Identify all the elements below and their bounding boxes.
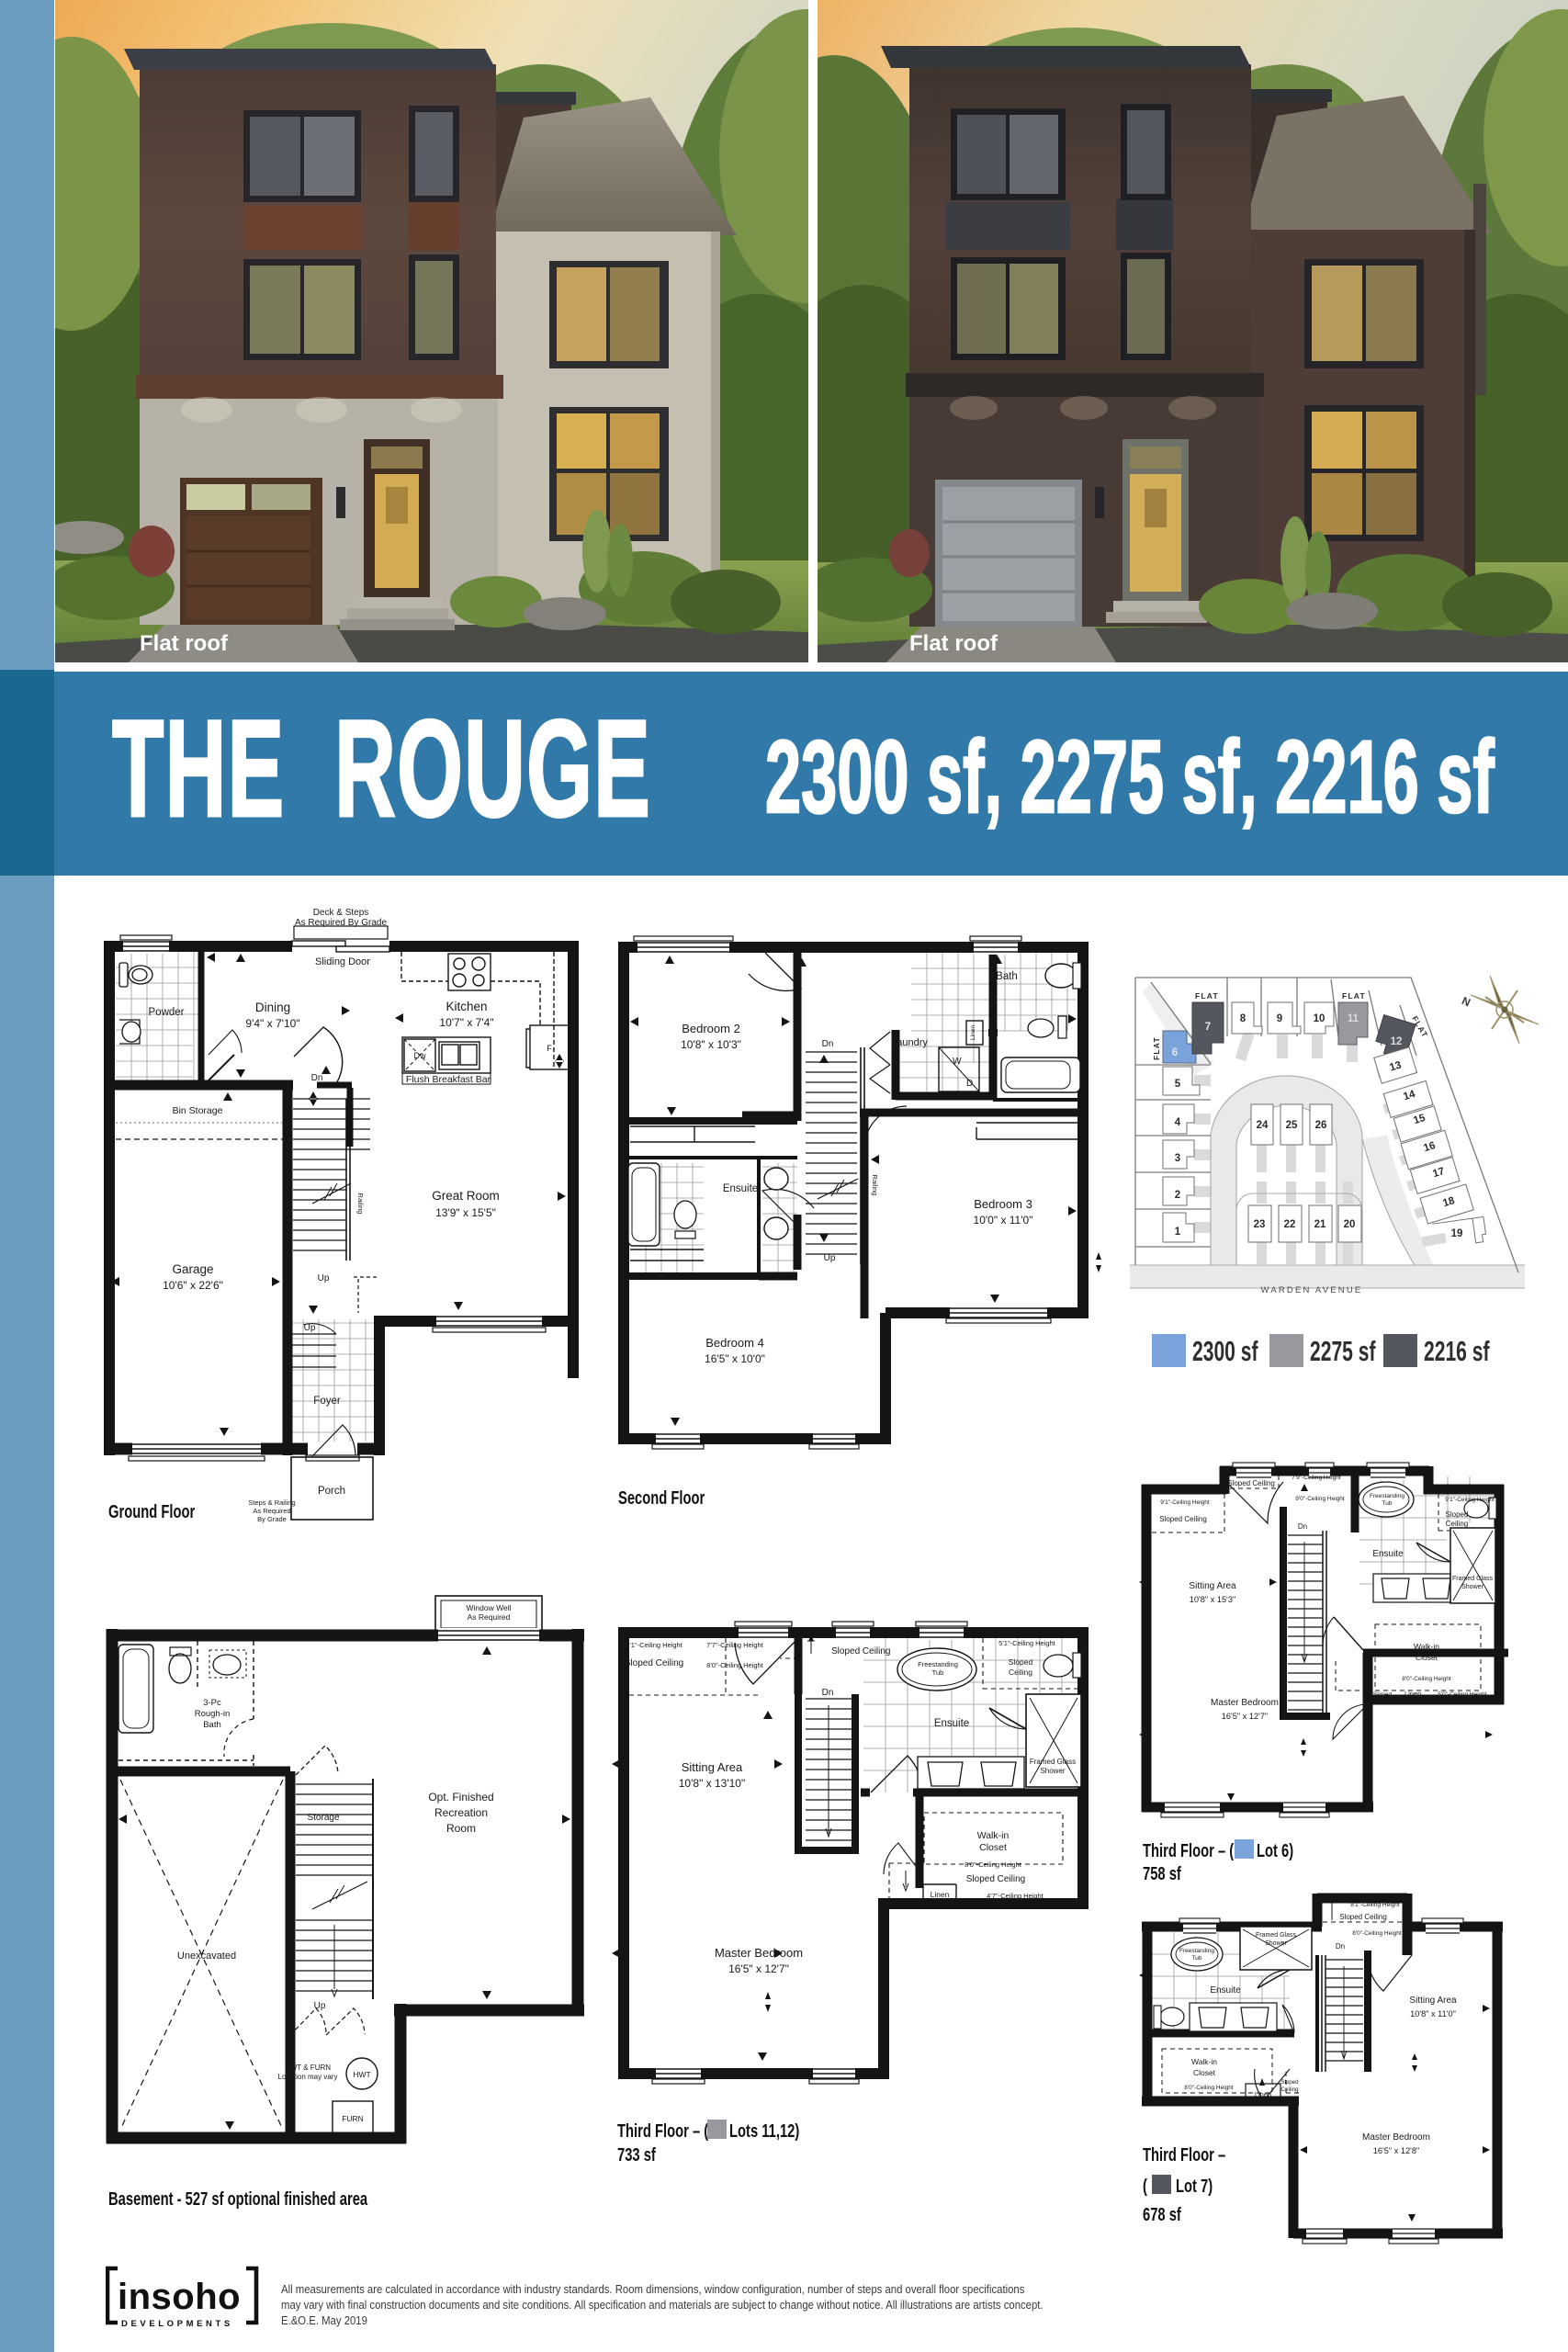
svg-text:21: 21	[1314, 1219, 1326, 1230]
svg-text:Lot 7): Lot 7)	[1176, 2176, 1213, 2197]
svg-text:Steps & Railing: Steps & Railing	[248, 1498, 295, 1507]
svg-text:2300 sf: 2300 sf	[1192, 1335, 1258, 1367]
svg-text:Kitchen: Kitchen	[446, 1000, 487, 1013]
svg-text:733 sf: 733 sf	[617, 2144, 656, 2165]
svg-text:Shower: Shower	[1461, 1584, 1483, 1590]
svg-text:Walk-in: Walk-in	[977, 1830, 1010, 1841]
svg-text:10'6" x 22'6": 10'6" x 22'6"	[163, 1279, 223, 1292]
svg-text:Sloped: Sloped	[1280, 2079, 1299, 2086]
svg-text:Sloped Ceiling: Sloped Ceiling	[1227, 1479, 1275, 1487]
svg-text:8'1"-Ceiling Height: 8'1"-Ceiling Height	[1350, 1902, 1400, 1908]
svg-text:Flat roof: Flat roof	[909, 631, 998, 656]
svg-text:Up: Up	[318, 1273, 330, 1283]
svg-text:678 sf: 678 sf	[1143, 2204, 1181, 2225]
svg-text:N: N	[1460, 994, 1472, 1009]
svg-text:Ceiling: Ceiling	[1446, 1520, 1468, 1528]
svg-text:Porch: Porch	[318, 1486, 345, 1497]
svg-text:WARDEN AVENUE: WARDEN AVENUE	[1261, 1285, 1363, 1295]
svg-text:Master Bedroom: Master Bedroom	[1211, 1698, 1279, 1708]
svg-text:W: W	[953, 1057, 962, 1067]
svg-text:Window Well: Window Well	[467, 1603, 512, 1612]
svg-text:758 sf: 758 sf	[1143, 1863, 1181, 1883]
svg-text:10'8" x 10'3": 10'8" x 10'3"	[681, 1038, 741, 1051]
svg-text:insoho: insoho	[118, 2277, 241, 2317]
svg-text:Master Bedroom: Master Bedroom	[715, 1946, 803, 1960]
svg-text:8: 8	[1240, 1013, 1247, 1024]
svg-text:Sloped Ceiling: Sloped Ceiling	[831, 1646, 891, 1657]
svg-text:Ground Floor: Ground Floor	[108, 1501, 195, 1522]
svg-text:Bin Storage: Bin Storage	[173, 1105, 223, 1116]
svg-text:Laundry: Laundry	[891, 1037, 928, 1048]
svg-text:Deck & Steps: Deck & Steps	[313, 908, 369, 918]
svg-text:Tub: Tub	[1192, 1955, 1202, 1962]
svg-text:Railing: Railing	[356, 1193, 365, 1215]
svg-text:Rough-in: Rough-in	[195, 1709, 231, 1719]
svg-text:9'0"-Ceiling Height: 9'0"-Ceiling Height	[1295, 1496, 1345, 1502]
svg-text:Sloped Ceiling: Sloped Ceiling	[625, 1658, 684, 1668]
svg-text:5: 5	[1175, 1079, 1181, 1090]
svg-text:9'4" x 7'10": 9'4" x 7'10"	[245, 1017, 299, 1030]
svg-text:7'7"-Ceiling Height: 7'7"-Ceiling Height	[706, 1641, 764, 1649]
svg-text:Dining: Dining	[255, 1001, 290, 1014]
svg-text:Up: Up	[304, 1323, 316, 1333]
svg-text:Sitting Area: Sitting Area	[1189, 1581, 1236, 1591]
svg-text:6: 6	[1172, 1047, 1178, 1058]
svg-text:Linen: Linen	[1255, 2090, 1271, 2098]
svg-text:10'8" x 13'10": 10'8" x 13'10"	[679, 1777, 746, 1790]
svg-text:5'0"-Ceiling Height: 5'0"-Ceiling Height	[1438, 1691, 1487, 1698]
svg-text:Bedroom 3: Bedroom 3	[974, 1197, 1032, 1211]
svg-text:Room: Room	[446, 1822, 476, 1835]
svg-text:Shower: Shower	[1265, 1940, 1287, 1947]
svg-text:9'1"-Ceiling Height: 9'1"-Ceiling Height	[1160, 1499, 1210, 1506]
svg-text:16'5" x 10'0": 16'5" x 10'0"	[705, 1352, 765, 1365]
svg-text:Lot 6): Lot 6)	[1257, 1840, 1293, 1861]
svg-text:Sloped Ceiling: Sloped Ceiling	[1339, 1913, 1387, 1921]
svg-text:As Required: As Required	[468, 1612, 511, 1622]
svg-text:Dn: Dn	[311, 1073, 323, 1083]
svg-text:3-Pc: 3-Pc	[203, 1698, 221, 1708]
svg-text:Bath: Bath	[996, 971, 1018, 982]
svg-text:Storage: Storage	[307, 1813, 339, 1823]
svg-text:10'0" x 11'0": 10'0" x 11'0"	[974, 1214, 1033, 1227]
svg-text:Dn: Dn	[822, 1039, 834, 1049]
svg-text:5'1"-Ceiling Height: 5'1"-Ceiling Height	[626, 1641, 683, 1649]
svg-text:10'8" x 15'3": 10'8" x 15'3"	[1190, 1595, 1235, 1604]
svg-text:2: 2	[1175, 1190, 1180, 1201]
svg-text:Sloped: Sloped	[1446, 1510, 1469, 1519]
svg-text:16'5" x 12'8": 16'5" x 12'8"	[1373, 2146, 1419, 2155]
svg-text:1: 1	[1175, 1227, 1181, 1238]
svg-text:Walk-in: Walk-in	[1191, 2057, 1217, 2066]
svg-text:Ensuite: Ensuite	[1372, 1549, 1404, 1559]
svg-text:Closet: Closet	[1193, 2068, 1216, 2077]
svg-text:Master Bedroom: Master Bedroom	[1362, 2132, 1430, 2143]
svg-text:Sitting Area: Sitting Area	[682, 1760, 743, 1774]
svg-text:Framed Glass: Framed Glass	[1256, 1932, 1296, 1939]
svg-text:By Grade: By Grade	[257, 1515, 287, 1523]
svg-text:16'5" x 12'7": 16'5" x 12'7"	[1222, 1712, 1268, 1721]
svg-text:Flush Breakfast Bar: Flush Breakfast Bar	[406, 1074, 491, 1085]
svg-text:Freestanding: Freestanding	[1370, 1493, 1404, 1499]
svg-text:Dn: Dn	[1336, 1942, 1345, 1951]
svg-text:Dn: Dn	[1298, 1522, 1307, 1531]
svg-text:Ensuite: Ensuite	[723, 1183, 758, 1194]
svg-text:Ceiling: Ceiling	[1009, 1668, 1032, 1677]
svg-text:Dw: Dw	[414, 1051, 426, 1060]
svg-text:23: 23	[1254, 1219, 1266, 1230]
svg-text:Foyer: Foyer	[313, 1396, 341, 1407]
svg-text:Sloped Ceiling: Sloped Ceiling	[966, 1874, 1026, 1884]
svg-text:Sloped Ceiling: Sloped Ceiling	[1159, 1515, 1207, 1523]
svg-text:Closet: Closet	[1416, 1653, 1438, 1662]
svg-text:Freestanding: Freestanding	[1179, 1948, 1214, 1954]
svg-text:Dn: Dn	[822, 1688, 834, 1698]
svg-text:Shower: Shower	[1040, 1767, 1065, 1775]
svg-text:8'0"-Ceiling Height: 8'0"-Ceiling Height	[1184, 2085, 1234, 2091]
svg-text:10'8" x 11'0": 10'8" x 11'0"	[1410, 2009, 1456, 2018]
svg-text:Location may vary: Location may vary	[278, 2073, 338, 2081]
svg-text:9'1"-Ceiling Height: 9'1"-Ceiling Height	[1445, 1497, 1495, 1503]
svg-text:FLAT: FLAT	[1195, 991, 1219, 1001]
svg-text:5'1"-Ceiling Height: 5'1"-Ceiling Height	[998, 1639, 1056, 1647]
svg-text:8'0"-Ceiling Height: 8'0"-Ceiling Height	[1352, 1930, 1402, 1937]
svg-text:Third Floor – (: Third Floor – (	[617, 2120, 708, 2142]
svg-text:As Required By Grade: As Required By Grade	[295, 918, 387, 928]
svg-text:FLAT: FLAT	[1152, 1036, 1161, 1060]
svg-text:Linen: Linen	[970, 1025, 976, 1040]
svg-text:2216 sf: 2216 sf	[1424, 1335, 1490, 1367]
svg-text:11: 11	[1348, 1013, 1359, 1024]
svg-text:Linen: Linen	[931, 1890, 950, 1899]
svg-text:Garage: Garage	[172, 1262, 213, 1276]
svg-text:Tub: Tub	[1382, 1500, 1393, 1507]
svg-text:Walk-in: Walk-in	[1414, 1642, 1439, 1651]
svg-text:24: 24	[1257, 1120, 1269, 1131]
svg-text:25: 25	[1286, 1120, 1298, 1131]
svg-text:Flat roof: Flat roof	[140, 631, 229, 656]
svg-text:Opt. Finished: Opt. Finished	[428, 1791, 493, 1804]
svg-text:Linen: Linen	[1404, 1690, 1421, 1698]
svg-text:4'7"-Ceiling Height: 4'7"-Ceiling Height	[987, 1892, 1044, 1900]
svg-text:Bath: Bath	[203, 1720, 221, 1730]
svg-text:3: 3	[1175, 1153, 1180, 1164]
svg-text:7'9"-Ceiling Height: 7'9"-Ceiling Height	[1292, 1475, 1341, 1481]
svg-text:Powder: Powder	[149, 1007, 185, 1018]
svg-text:Sliding Door: Sliding Door	[315, 956, 370, 967]
svg-text:10'7" x 7'4": 10'7" x 7'4"	[439, 1016, 493, 1029]
svg-text:F: F	[547, 1044, 552, 1053]
svg-text:HWT & FURN: HWT & FURN	[285, 2064, 331, 2072]
svg-text:Up: Up	[314, 2001, 326, 2011]
svg-text:16'5" x 12'7": 16'5" x 12'7"	[728, 1962, 789, 1975]
svg-text:DEVELOPMENTS: DEVELOPMENTS	[121, 2319, 233, 2329]
svg-text:8'0"-Ceiling Height: 8'0"-Ceiling Height	[706, 1661, 764, 1669]
svg-text:As Required: As Required	[253, 1507, 290, 1515]
svg-text:Bedroom 2: Bedroom 2	[682, 1022, 740, 1035]
svg-text:8'0"-Ceiling Height: 8'0"-Ceiling Height	[964, 1860, 1022, 1869]
svg-text:8'0"-Ceiling Height: 8'0"-Ceiling Height	[1402, 1676, 1451, 1682]
svg-text:(: (	[1143, 2176, 1147, 2197]
svg-text:10: 10	[1314, 1013, 1325, 1024]
svg-text:Up: Up	[824, 1253, 836, 1263]
svg-text:Railing: Railing	[871, 1175, 879, 1196]
svg-text:Sloped: Sloped	[1373, 1691, 1393, 1698]
svg-text:Third Floor –: Third Floor –	[1143, 2144, 1225, 2165]
svg-text:Lots 11,12): Lots 11,12)	[729, 2120, 799, 2142]
svg-text:Third Floor – (: Third Floor – (	[1143, 1840, 1234, 1861]
svg-text:Framed Glass: Framed Glass	[1030, 1758, 1076, 1766]
svg-text:Sitting Area: Sitting Area	[1409, 1996, 1457, 2006]
svg-text:FLAT: FLAT	[1342, 991, 1366, 1001]
svg-text:Basement - 527 sf optional fin: Basement - 527 sf optional finished area	[108, 2188, 368, 2210]
svg-text:22: 22	[1284, 1219, 1296, 1230]
svg-text:4'7"-Ceiling Height: 4'7"-Ceiling Height	[1188, 2097, 1237, 2103]
svg-text:Ensuite: Ensuite	[1210, 1985, 1241, 1996]
svg-text:FURN: FURN	[342, 2114, 364, 2123]
svg-text:12: 12	[1391, 1036, 1403, 1047]
svg-text:26: 26	[1315, 1120, 1327, 1131]
svg-text:Sloped: Sloped	[1009, 1657, 1033, 1667]
svg-text:Bedroom 4: Bedroom 4	[705, 1336, 764, 1350]
svg-text:HWT: HWT	[353, 2070, 370, 2079]
svg-text:2275 sf: 2275 sf	[1310, 1335, 1376, 1367]
svg-text:Great Room: Great Room	[432, 1189, 500, 1203]
svg-text:Freestanding: Freestanding	[918, 1660, 958, 1668]
svg-text:4: 4	[1175, 1117, 1181, 1128]
svg-text:7: 7	[1205, 1022, 1211, 1033]
svg-text:19: 19	[1451, 1228, 1463, 1239]
svg-text:Second Floor: Second Floor	[618, 1487, 705, 1509]
svg-text:Tub: Tub	[932, 1668, 944, 1677]
svg-text:Ensuite: Ensuite	[934, 1718, 969, 1729]
svg-text:Closet: Closet	[979, 1842, 1007, 1853]
svg-text:Unexcavated: Unexcavated	[177, 1951, 236, 1962]
svg-text:Framed Glass: Framed Glass	[1452, 1576, 1493, 1582]
svg-text:9: 9	[1277, 1013, 1282, 1024]
svg-text:Recreation: Recreation	[434, 1806, 488, 1819]
svg-text:20: 20	[1344, 1219, 1356, 1230]
svg-text:13'9" x 15'5": 13'9" x 15'5"	[435, 1206, 496, 1219]
svg-text:D: D	[966, 1079, 973, 1089]
svg-text:Ceiling: Ceiling	[1281, 2086, 1299, 2093]
